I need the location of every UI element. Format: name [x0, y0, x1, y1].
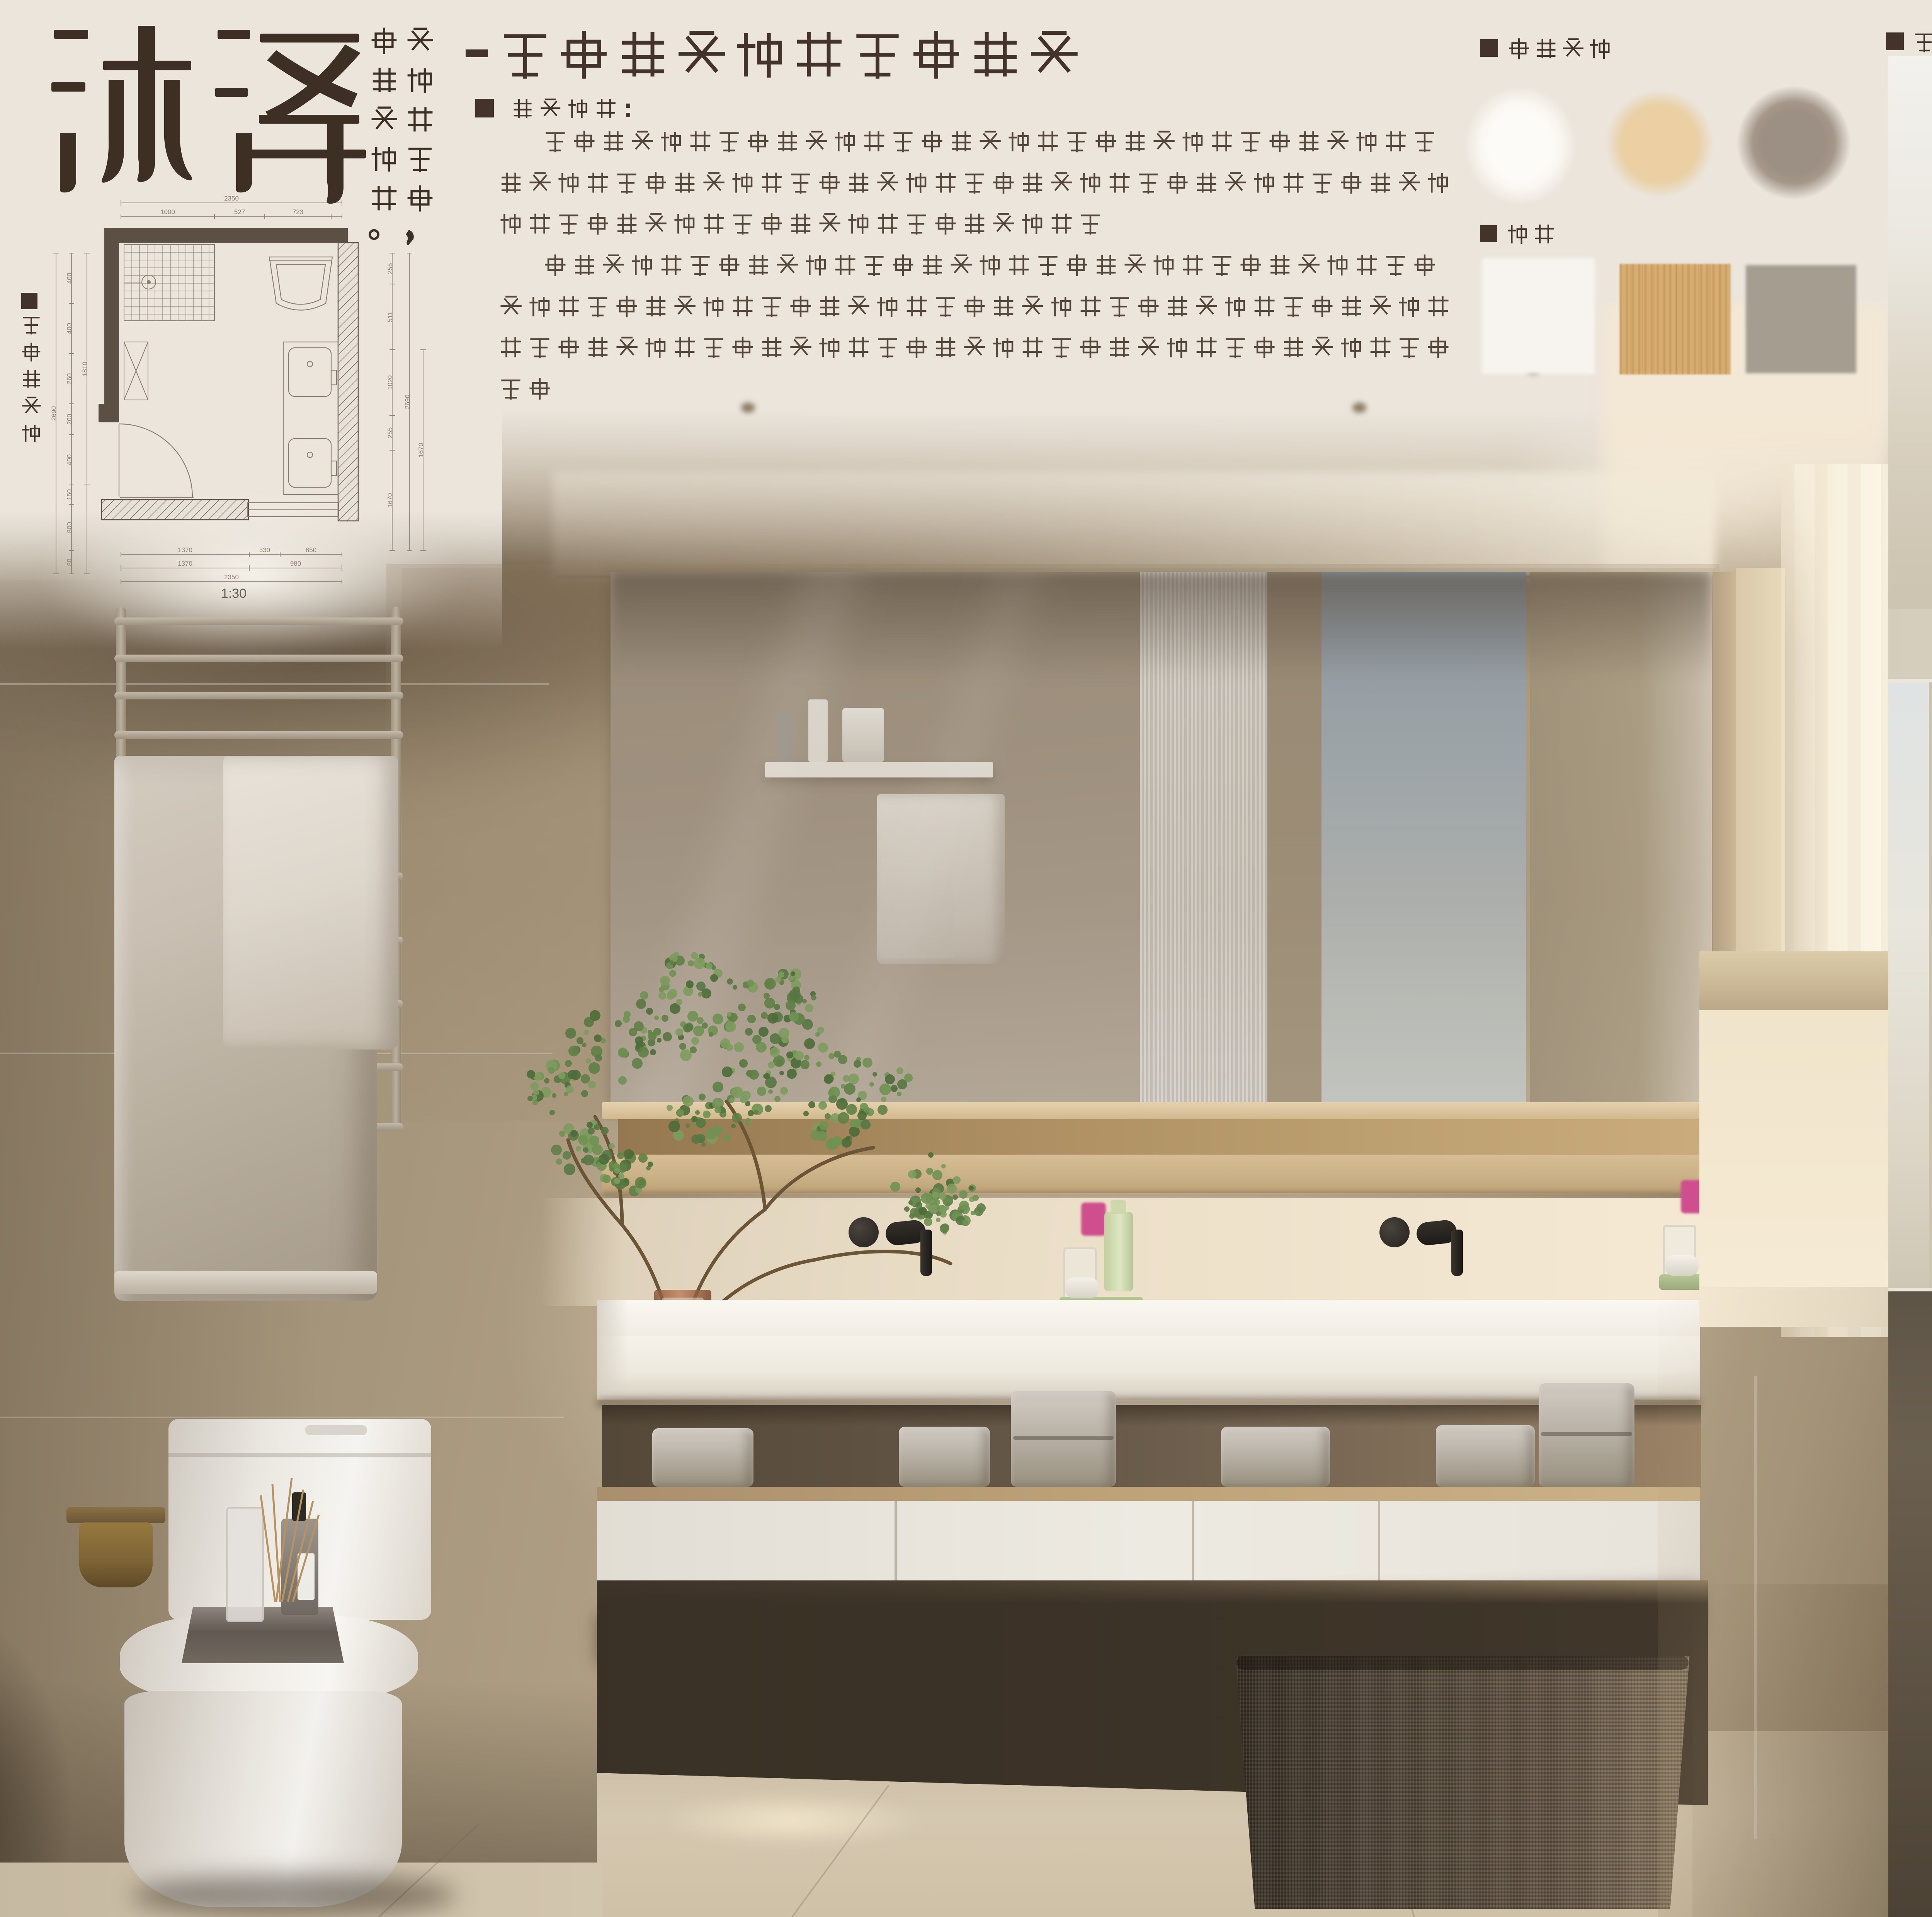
svg-text:1020: 1020 [386, 375, 394, 390]
svg-text:1370: 1370 [178, 560, 192, 567]
svg-text:800: 800 [66, 522, 73, 533]
svg-text:1810: 1810 [81, 362, 88, 376]
svg-text:150: 150 [66, 489, 73, 500]
svg-text:400: 400 [66, 273, 73, 284]
svg-text:650: 650 [306, 546, 316, 554]
svg-text:2690: 2690 [404, 395, 411, 409]
svg-text:2350: 2350 [224, 573, 239, 581]
svg-text:400: 400 [66, 323, 73, 334]
svg-text:260: 260 [66, 373, 73, 384]
svg-text:1670: 1670 [386, 493, 394, 508]
svg-text:1670: 1670 [417, 443, 425, 458]
svg-text:1:30: 1:30 [221, 586, 247, 601]
svg-text:255: 255 [386, 427, 394, 438]
svg-text:330: 330 [259, 546, 270, 554]
svg-text:400: 400 [66, 454, 73, 465]
svg-text:1370: 1370 [178, 546, 192, 554]
svg-text:200: 200 [66, 414, 73, 425]
svg-text:980: 980 [290, 560, 301, 567]
svg-text:80: 80 [66, 559, 73, 566]
svg-text:511: 511 [386, 311, 394, 322]
